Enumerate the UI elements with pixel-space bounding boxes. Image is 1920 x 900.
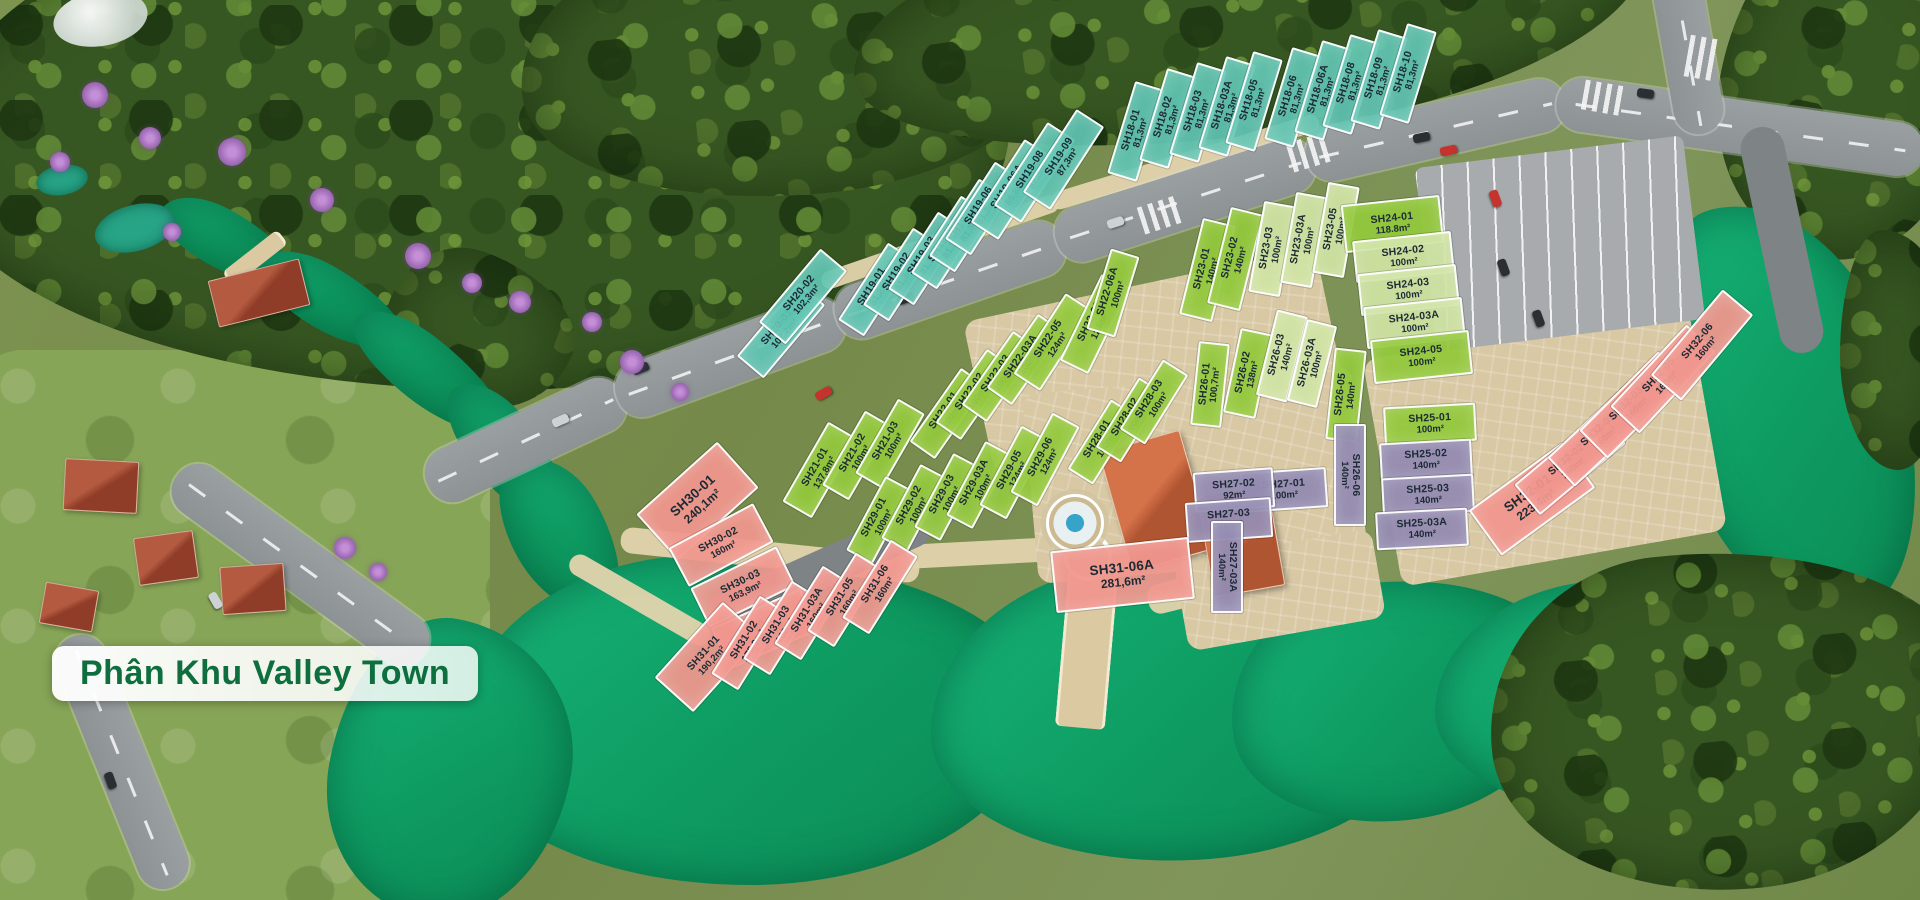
flowering-tree [163, 223, 181, 241]
lot-area: 100m² [1389, 256, 1417, 269]
flowering-tree [671, 383, 689, 401]
lot-area: 100,7m² [1209, 366, 1223, 402]
flowering-tree [369, 563, 387, 581]
lot-area: 140m² [1412, 460, 1440, 472]
lot-area: 118.8m² [1375, 223, 1411, 237]
house-roof [39, 582, 99, 633]
house-roof [133, 530, 199, 586]
flowering-tree [509, 291, 531, 313]
lot-area: 140m² [1408, 529, 1436, 541]
lot-marker[interactable]: SH27-03A 140m² [1211, 521, 1243, 613]
flowering-tree [139, 127, 161, 149]
area-title-badge: Phân Khu Valley Town [52, 646, 478, 701]
lot-area: 140m² [1339, 461, 1349, 488]
lot-marker[interactable]: SH26-06 140m² [1334, 424, 1366, 526]
flowering-tree [310, 188, 334, 212]
lot-area: 100m² [1394, 289, 1422, 302]
lot-area: 140m² [1414, 495, 1442, 507]
flowering-tree [82, 82, 108, 108]
flowering-tree [405, 243, 431, 269]
masterplan-map: SH18-01 81,3m² SH18-02 81,3m² SH18-03 81… [0, 0, 1920, 900]
lot-area: 140m² [1216, 553, 1226, 580]
house-roof [63, 458, 140, 514]
lot-area: 100m² [1400, 322, 1428, 335]
house-roof [219, 563, 286, 615]
car [813, 385, 832, 401]
car [1636, 87, 1654, 98]
lot-area: 100m² [1416, 424, 1444, 436]
lot-area: 281,6m² [1100, 573, 1146, 591]
lot-area: 140m² [1345, 381, 1358, 409]
flowering-tree [462, 273, 482, 293]
area-title: Phân Khu Valley Town [80, 654, 450, 692]
lot-id: SH26-06 [1349, 454, 1360, 497]
lot-area: 100m² [1407, 356, 1435, 369]
flowering-tree [50, 152, 70, 172]
flowering-tree [218, 138, 246, 166]
fountain [1046, 494, 1104, 552]
lot-id: SH27-03A [1226, 542, 1237, 593]
lot-marker[interactable]: SH25-03A 140m² [1375, 508, 1469, 551]
flowering-tree [582, 312, 602, 332]
flowering-tree [620, 350, 644, 374]
forest-area [1474, 526, 1920, 900]
flowering-tree [334, 537, 356, 559]
